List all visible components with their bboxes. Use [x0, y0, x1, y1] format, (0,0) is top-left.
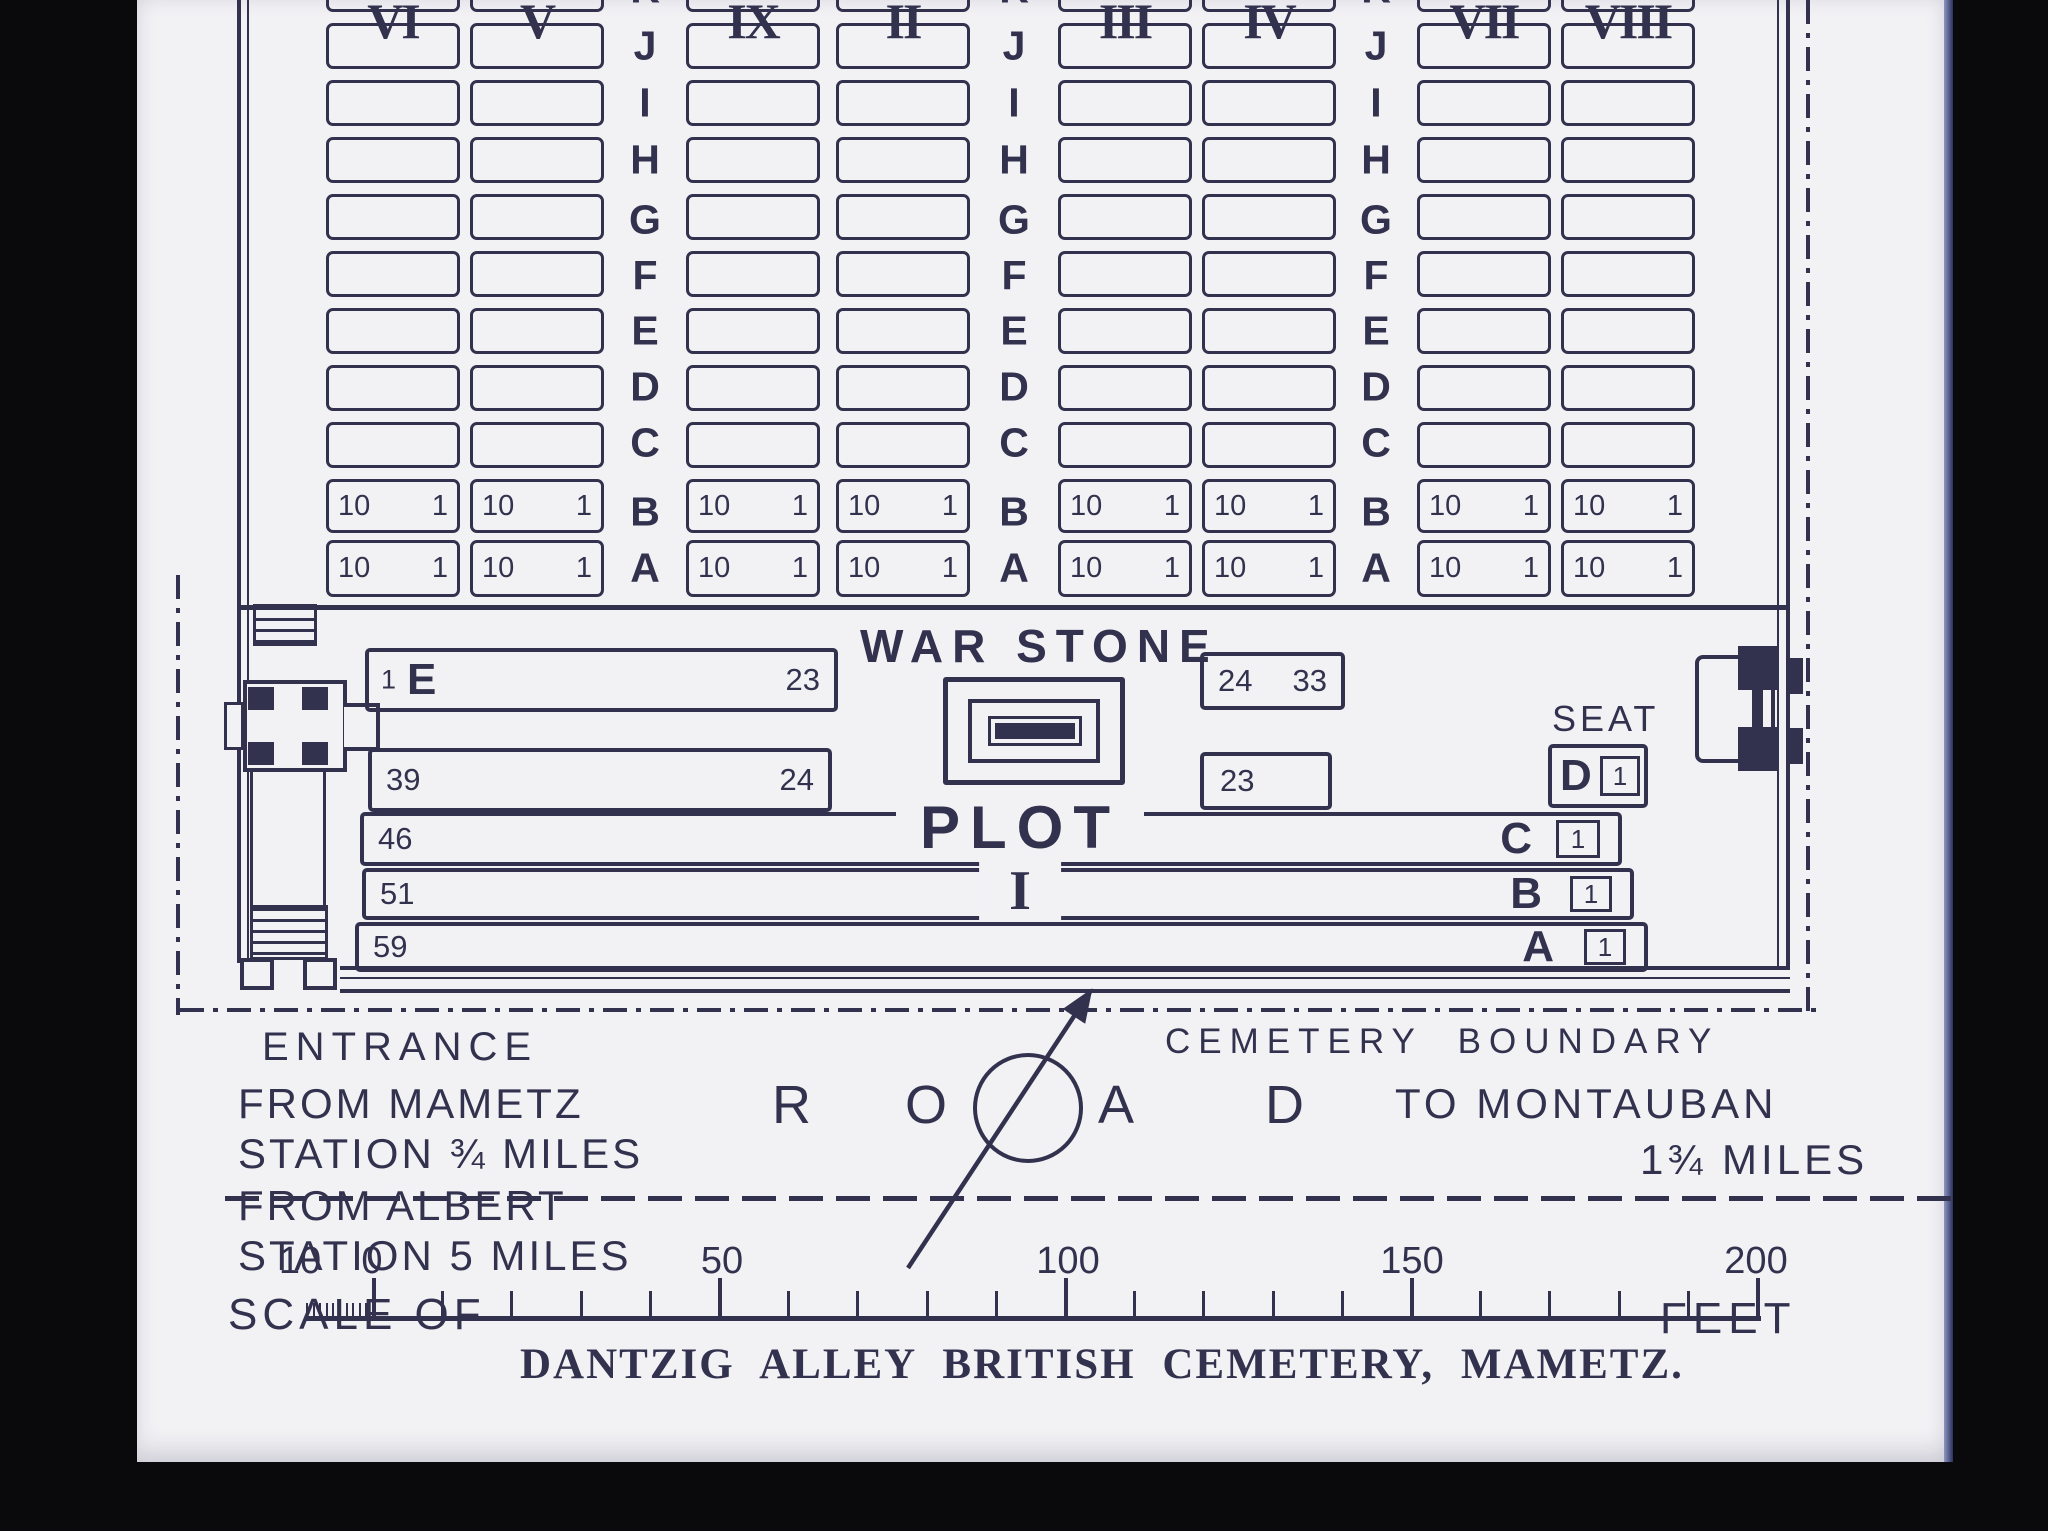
scale-tick — [926, 1291, 929, 1318]
scale-tick — [510, 1291, 513, 1318]
plan-title: DANTZIG ALLEY BRITISH CEMETERY, MAMETZ. — [520, 1342, 1532, 1387]
scale-label-10: 10 — [279, 1240, 321, 1283]
scale-tick — [1548, 1291, 1551, 1318]
scale-tick — [995, 1291, 998, 1318]
plan-canvas: 101101VI101101V101101IX101101II101101III… — [0, 0, 2048, 1531]
scale-tick — [718, 1278, 722, 1318]
scale-tick — [856, 1291, 859, 1318]
scale-label-100: 100 — [1036, 1240, 1099, 1283]
photo-of-cemetery-plan: { "colors": { "ink": "#32324f", "paper":… — [0, 0, 2048, 1531]
scale-bar-line — [306, 1316, 1761, 1321]
scale-of-label: SCALE OF — [228, 1292, 486, 1338]
plot-numeral-i: I — [979, 862, 1061, 921]
scale-label-0: 0 — [361, 1240, 382, 1283]
scale-tick — [1479, 1291, 1482, 1318]
scale-tick — [1202, 1291, 1205, 1318]
plot-label: PLOT — [896, 796, 1144, 859]
scale-tick — [1410, 1278, 1414, 1318]
scale-tick — [1064, 1278, 1068, 1318]
scale-label-150: 150 — [1380, 1240, 1443, 1283]
scale-label-200: 200 — [1724, 1240, 1787, 1283]
scale-tick — [649, 1291, 652, 1318]
scale-tick — [1133, 1291, 1136, 1318]
scale-tick — [1618, 1291, 1621, 1318]
scale-tick — [1341, 1291, 1344, 1318]
scale-tick — [787, 1291, 790, 1318]
scale-label-50: 50 — [701, 1240, 743, 1283]
scale-tick — [580, 1291, 583, 1318]
feet-label: FEET — [1660, 1296, 1796, 1342]
scale-tick — [1272, 1291, 1275, 1318]
